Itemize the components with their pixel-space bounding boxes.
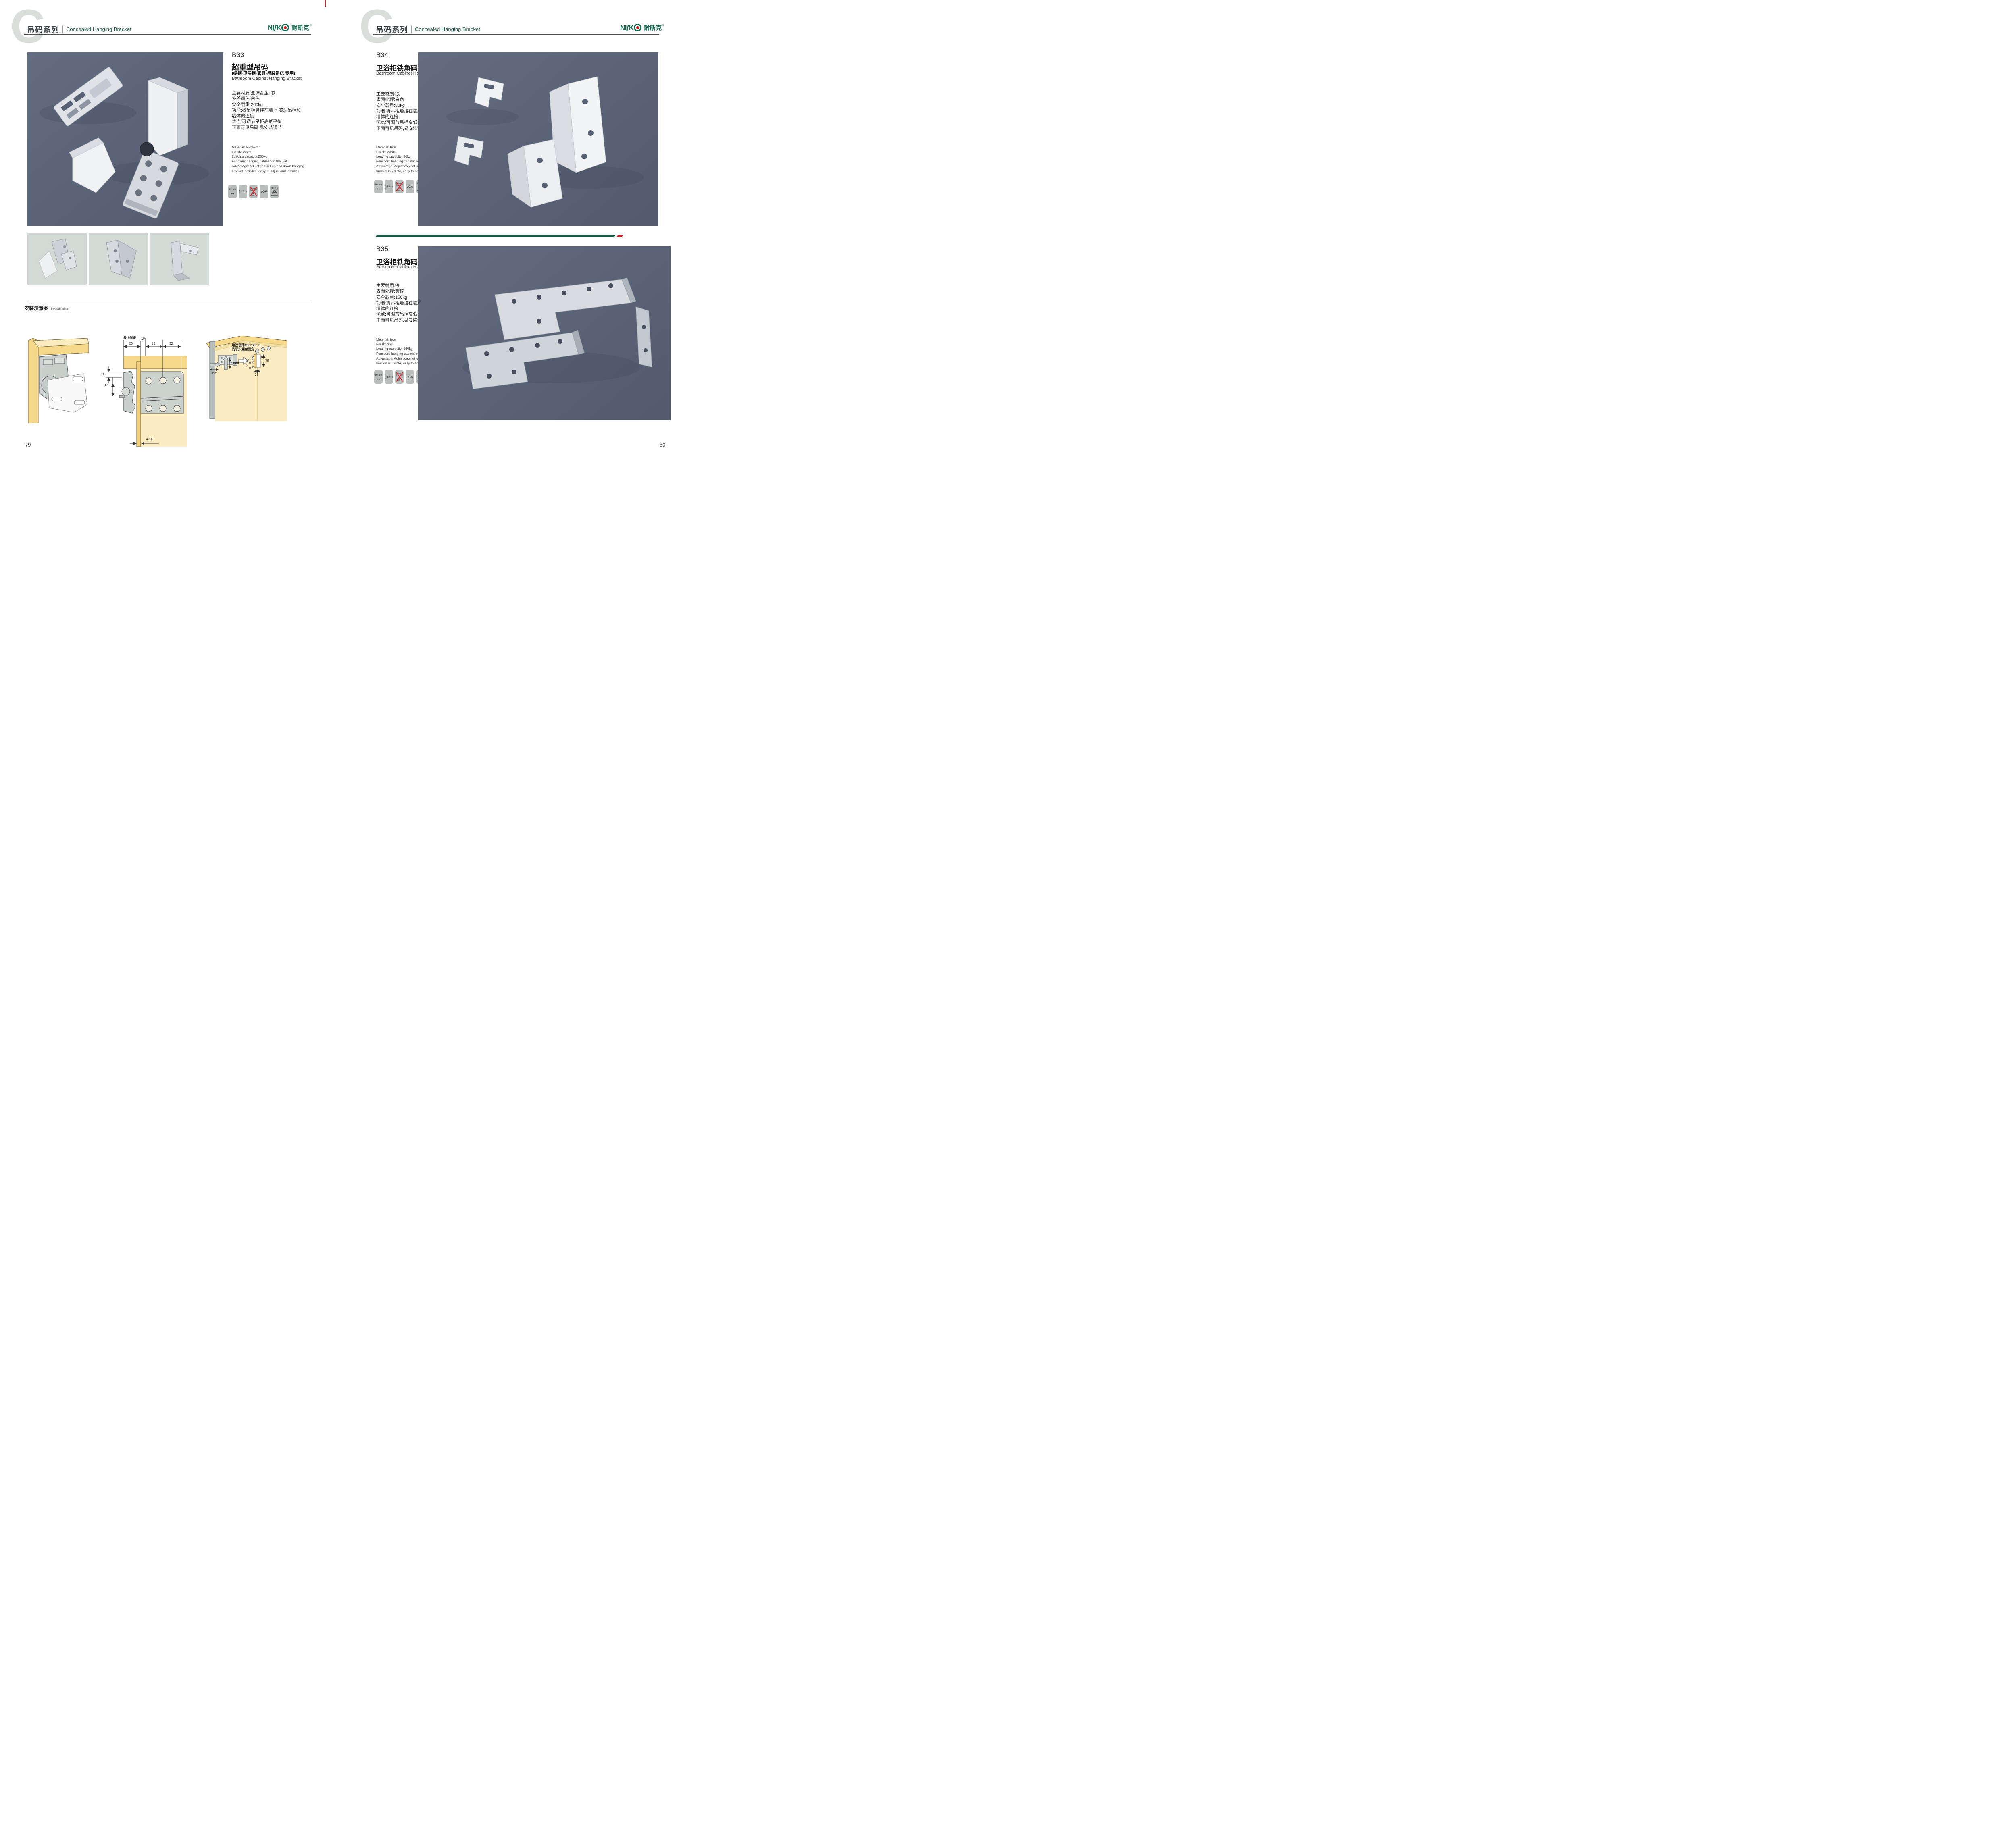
install-title-en: Installation	[51, 307, 69, 311]
panel-width-icon: 12mm ↔	[228, 185, 237, 198]
lga-cert-icon: LGA	[406, 370, 414, 384]
specs-en-b33: Material: Alloy+iron Finish: White Loadi…	[232, 145, 304, 173]
product-photo-b34	[418, 52, 658, 226]
spec-line: Advantage: Adjust cabinet up and down ha…	[232, 164, 304, 169]
product-subtitle-cn-b33: (橱柜·卫浴柜·家具·吊装系统 专用)	[232, 70, 295, 76]
header-divider	[62, 25, 63, 33]
panel-width-icon: 10mm ↔	[374, 370, 383, 384]
dim-32-a: 32	[152, 342, 155, 345]
no-drill-icon	[249, 185, 258, 198]
specs-cn-b33: 主要材质:全锌合金+铁 外盖颜色:白色 安全载重:260kg 功能:将吊柜悬挂在…	[232, 90, 301, 131]
dim-78: 78	[265, 359, 269, 362]
b34-z-clip-2	[454, 136, 483, 165]
product-photo-b33	[27, 52, 223, 226]
spec-line: 安全载重:260kg	[232, 102, 301, 108]
dim-32-c: 32	[104, 383, 108, 387]
page-number-left: 79	[25, 442, 31, 448]
install-title: 安装示意图 Installation	[24, 305, 69, 312]
brand-k: K	[629, 24, 633, 32]
b33-photo-art	[27, 52, 223, 226]
dim-32-b: 32	[169, 342, 173, 345]
dim-9mm-vertical: 9mm	[231, 361, 239, 365]
brand-registered-mark: ®	[662, 24, 664, 27]
min-gap-label: 最小间距	[123, 335, 136, 340]
horizontal-arrow-icon: ↔	[376, 186, 381, 190]
icon-row-b33: 12mm ↔ ↕ 13mm LGA 260Kg	[228, 185, 279, 198]
brand-registered-mark: ®	[310, 24, 312, 27]
spec-line: 墙体的连接	[232, 113, 301, 119]
gutter-crop-mark	[325, 0, 326, 7]
screw-note-line2: 的平头螺丝固定	[232, 347, 254, 352]
dim-20: 20	[129, 342, 133, 345]
product-code-b34: B34	[376, 51, 388, 59]
catalog-spread: C 吊码系列 Concealed Hanging Bracket NIʃK 耐斯…	[0, 0, 676, 462]
panel-thickness-label: 15mm	[387, 376, 393, 379]
thumbnail-b33-parts	[27, 233, 87, 285]
b34-l-bracket-center	[508, 139, 562, 207]
spec-line: Finish: White	[232, 150, 304, 155]
lga-cert-icon: LGA	[406, 180, 414, 193]
lga-label: LGA	[406, 376, 413, 379]
no-drill-icon	[395, 180, 404, 193]
load-capacity-label: 260Kg	[271, 187, 278, 190]
dim-11: 11	[101, 372, 104, 376]
brand-ni: NI	[268, 24, 274, 32]
panel-thickness-icon: ↕ 15mm	[385, 370, 393, 384]
brand-ni: NI	[620, 24, 627, 32]
spec-line: Loading capacity:260kg	[232, 154, 304, 159]
load-capacity-icon: 260Kg	[270, 185, 279, 198]
spec-line: 优点:可调节吊柜高低平衡	[232, 119, 301, 125]
dim-10: 10	[141, 337, 145, 341]
brand-cn: 耐斯克	[644, 23, 662, 32]
dim-9mm-horizontal: 9mm	[210, 371, 217, 375]
brand-logo: NIʃK 耐斯克 ®	[268, 23, 312, 32]
b34-l-bracket-right	[550, 77, 606, 173]
b34-z-clip-1	[475, 77, 504, 107]
lga-cert-icon: LGA	[260, 185, 268, 198]
header-rule-left	[24, 34, 311, 35]
thumbnail-b33-side	[150, 233, 209, 285]
series-title-en: Concealed Hanging Bracket	[66, 26, 131, 32]
vertical-arrow-icon: ↕	[385, 184, 387, 190]
spec-line: bracket is visible, easy to adjust and i…	[232, 169, 304, 174]
section-separator-green	[375, 235, 616, 237]
install-diagram-dimensions: 最小间距 20 10 32 32 11 32 4-14	[98, 336, 187, 447]
brand-logo-right: NIʃK 耐斯克 ®	[620, 23, 664, 32]
panel-thickness-label: 13mm	[241, 190, 247, 193]
product-code-b35: B35	[376, 245, 388, 253]
spec-line: 主要材质:全锌合金+铁	[232, 90, 301, 96]
dim-37: 37	[255, 373, 258, 376]
panel-thickness-label: 15mm	[387, 185, 393, 188]
panel-width-icon: 10mm ↔	[374, 180, 383, 193]
install-diagram-side-view	[25, 337, 89, 423]
lga-label: LGA	[260, 190, 267, 193]
page-header-right: 吊码系列 Concealed Hanging Bracket	[376, 24, 480, 35]
install-diagram-perspective: 建议使用M6x12mm 的平头螺丝固定 78 37 9mm 9mm	[206, 336, 287, 422]
horizontal-arrow-icon: ↔	[376, 376, 381, 381]
b33-steel-bracket	[122, 149, 179, 219]
install-title-cn: 安装示意图	[24, 305, 48, 312]
vertical-arrow-icon: ↕	[239, 189, 241, 195]
thumbnail-b33-assembled	[89, 233, 148, 285]
panel-thickness-icon: ↕ 15mm	[385, 180, 393, 193]
spec-line: 正面可见吊码,易安装调节	[232, 125, 301, 131]
b33-cam-knob	[140, 142, 154, 156]
series-title-cn: 吊码系列	[376, 24, 408, 35]
brand-cn: 耐斯克	[291, 23, 309, 32]
header-rule-right	[373, 34, 659, 35]
b35-bent-lip-right	[636, 307, 652, 367]
b33-white-bracket-right	[148, 77, 188, 156]
page-number-right: 80	[660, 442, 665, 448]
spec-line: 功能:将吊柜悬挂在墙上,实现吊柜和	[232, 108, 301, 113]
spec-line: 外盖颜色:白色	[232, 96, 301, 102]
series-title-cn: 吊码系列	[27, 24, 59, 35]
spec-line: Material: Alloy+iron	[232, 145, 304, 150]
lga-label: LGA	[406, 185, 413, 188]
product-photo-b35	[418, 246, 671, 420]
page-header-left: 吊码系列 Concealed Hanging Bracket	[27, 24, 131, 35]
panel-thickness-icon: ↕ 13mm	[239, 185, 247, 198]
brand-k: K	[276, 24, 281, 32]
section-separator-red	[616, 235, 623, 237]
b35-plate-upper	[418, 278, 636, 340]
header-divider	[411, 25, 412, 33]
series-title-en: Concealed Hanging Bracket	[415, 26, 480, 32]
b33-white-cover-left	[69, 138, 115, 193]
product-title-en-b33: Bathroom Cabinet Hanging Bracket	[232, 76, 302, 81]
install-divider	[27, 302, 311, 302]
spec-line: Function: hanging cabinet on the wall	[232, 159, 304, 164]
brand-o-icon	[634, 24, 641, 31]
icon-row-b35: 10mm ↔ ↕ 15mm LGA 160KG	[374, 370, 425, 384]
brand-o-icon	[281, 24, 289, 31]
product-code-b33: B33	[232, 51, 244, 59]
icon-row-b34: 10mm ↔ ↕ 15mm LGA 80Kg	[374, 180, 425, 193]
no-drill-icon	[395, 370, 404, 384]
vertical-arrow-icon: ↕	[385, 374, 387, 380]
horizontal-arrow-icon: ↔	[230, 191, 235, 195]
dim-4-14: 4-14	[146, 437, 152, 441]
